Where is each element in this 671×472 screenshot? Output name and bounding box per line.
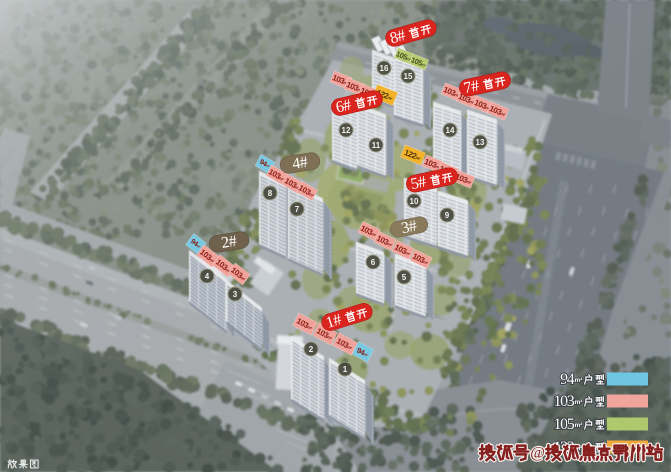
svg-text:11: 11 (372, 141, 381, 150)
svg-text:15: 15 (404, 72, 413, 81)
svg-text:6: 6 (371, 258, 376, 267)
svg-text:4: 4 (567, 371, 575, 388)
svg-text:5: 5 (402, 273, 407, 282)
svg-text:7: 7 (295, 205, 300, 214)
svg-text:16: 16 (380, 64, 389, 73)
svg-text:m²: m² (575, 399, 584, 406)
svg-text:m²: m² (575, 377, 584, 384)
svg-text:1: 1 (343, 365, 348, 374)
svg-text:12: 12 (342, 126, 351, 135)
svg-text:3: 3 (233, 290, 238, 299)
svg-text:8: 8 (268, 189, 273, 198)
svg-text:10: 10 (410, 197, 419, 206)
svg-text:13: 13 (476, 138, 485, 147)
svg-text:14: 14 (446, 126, 455, 135)
svg-text:m²: m² (575, 422, 584, 429)
svg-text:5: 5 (567, 416, 575, 433)
svg-text:9: 9 (445, 211, 450, 220)
svg-text:3: 3 (567, 393, 575, 410)
svg-text:4: 4 (205, 272, 210, 281)
svg-text:@: @ (530, 445, 545, 462)
svg-text:2: 2 (309, 345, 314, 354)
